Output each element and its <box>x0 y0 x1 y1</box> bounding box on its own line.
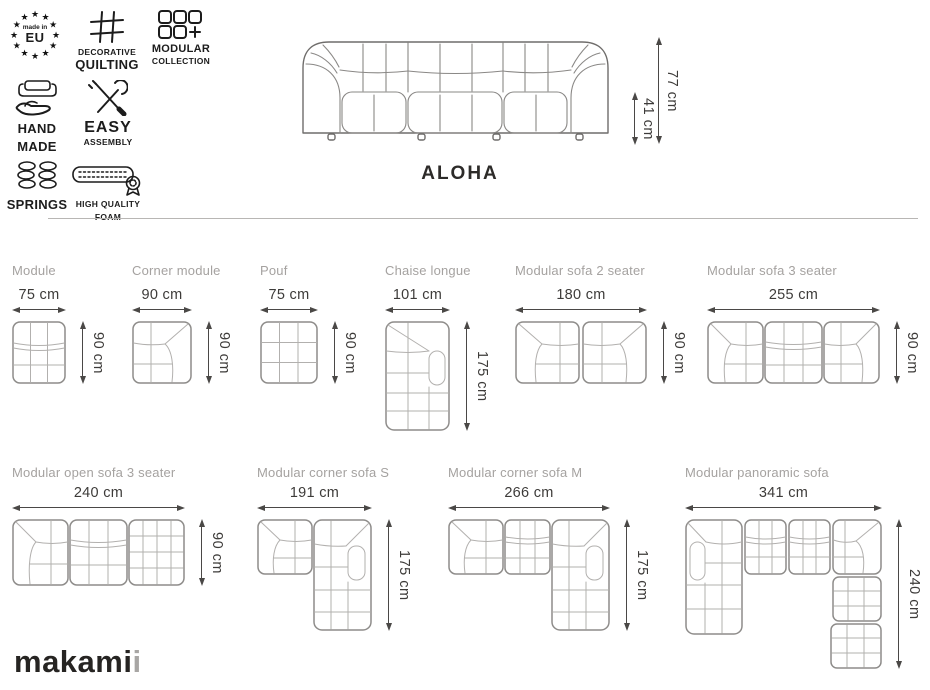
chaise-longue-top-view <box>385 321 450 431</box>
product-card-module: Module 75 cm 90 cm <box>12 263 106 384</box>
product-card-open-sofa-3-seater: Modular open sofa 3 seater 240 cm <box>12 465 225 586</box>
width-arrow <box>448 503 610 512</box>
width-label: 75 cm <box>260 287 318 303</box>
height-dimension: 90 cm <box>78 321 106 384</box>
corner-sofa-m-top-view <box>448 519 610 631</box>
height-label: 90 cm <box>209 519 225 586</box>
badge-label: EASY <box>84 120 132 137</box>
product-title: Corner module <box>132 263 232 279</box>
product-card-sofa-2-seater: Modular sofa 2 seater 180 cm <box>515 263 687 384</box>
high-quality-foam-badge: HIGH QUALITY FOAM <box>68 162 148 222</box>
product-card-corner-sofa-m: Modular corner sofa M 266 cm <box>448 465 650 631</box>
quilting-icon <box>89 10 125 44</box>
height-label: 90 cm <box>216 321 232 384</box>
width-arrow <box>260 305 318 314</box>
height-dimension: 90 cm <box>204 321 232 384</box>
modular-collection-icon <box>157 10 205 40</box>
badge-label: MADE <box>17 140 56 154</box>
hand-made-icon <box>13 80 61 118</box>
product-card-chaise-longue: Chaise longue 101 cm 17 <box>385 263 490 431</box>
product-spec-sheet: ★ ★ ★ ★ ★ ★ ★ ★ ★ ★ ★ ★ made in EU DECOR… <box>0 0 930 690</box>
height-arrow <box>330 321 339 384</box>
height-dimension: 240 cm <box>894 519 922 669</box>
sofa-front-view-drawing <box>298 30 613 145</box>
springs-icon <box>15 160 59 194</box>
brand-logo: makamii <box>14 644 142 680</box>
badge-label: SPRINGS <box>7 198 68 212</box>
width-label: 75 cm <box>12 287 66 303</box>
sofa-3-seater-top-view <box>707 321 880 384</box>
badge-label: DECORATIVE <box>78 48 136 57</box>
product-title: Modular sofa 2 seater <box>515 263 687 279</box>
made-in-eu-badge: ★ ★ ★ ★ ★ ★ ★ ★ ★ ★ ★ ★ made in EU <box>6 6 64 64</box>
width-label: 255 cm <box>707 287 880 303</box>
eu-label: EU <box>25 31 44 45</box>
seat-height-arrow <box>630 92 639 145</box>
width-arrow <box>12 305 66 314</box>
height-label: 90 cm <box>904 321 920 384</box>
springs-badge: SPRINGS <box>6 160 68 212</box>
height-label: 90 cm <box>90 321 106 384</box>
product-title: Modular panoramic sofa <box>685 465 922 481</box>
height-label: 175 cm <box>396 519 412 631</box>
height-dimension: 90 cm <box>659 321 687 384</box>
overall-height-label: 77 cm <box>664 37 680 144</box>
width-arrow <box>12 503 185 512</box>
height-arrow <box>659 321 668 384</box>
width-arrow <box>685 503 882 512</box>
width-label: 240 cm <box>12 485 185 501</box>
sofa-2-seater-top-view <box>515 321 647 384</box>
height-label: 240 cm <box>906 519 922 669</box>
easy-assembly-badge: EASY ASSEMBLY <box>74 80 142 147</box>
module-top-view <box>12 321 66 384</box>
corner-module-top-view <box>132 321 192 384</box>
product-title: Modular corner sofa M <box>448 465 650 481</box>
badge-label: COLLECTION <box>152 57 210 66</box>
width-arrow <box>132 305 192 314</box>
foam-icon <box>71 162 145 196</box>
pouf-top-view <box>260 321 318 384</box>
badge-label: QUILTING <box>75 58 139 72</box>
badge-label: HIGH QUALITY <box>76 200 141 209</box>
height-arrow <box>892 321 901 384</box>
height-label: 175 cm <box>634 519 650 631</box>
product-card-pouf: Pouf 75 cm 90 cm <box>260 263 358 384</box>
product-title: Modular open sofa 3 seater <box>12 465 225 481</box>
product-card-corner-sofa-s: Modular corner sofa S 191 cm <box>257 465 412 631</box>
product-card-panoramic-sofa: Modular panoramic sofa 341 cm <box>685 465 922 669</box>
width-arrow <box>257 503 372 512</box>
height-dimension: 175 cm <box>462 321 490 431</box>
width-label: 341 cm <box>685 485 882 501</box>
height-arrow <box>622 519 631 631</box>
width-arrow <box>515 305 647 314</box>
height-label: 175 cm <box>474 321 490 431</box>
product-card-corner-module: Corner module 90 cm 90 cm <box>132 263 232 384</box>
corner-sofa-s-top-view <box>257 519 372 631</box>
height-label: 90 cm <box>671 321 687 384</box>
width-label: 90 cm <box>132 287 192 303</box>
height-arrow <box>462 321 471 431</box>
badge-label: MODULAR <box>152 44 210 56</box>
product-title: Modular sofa 3 seater <box>707 263 920 279</box>
product-title: Chaise longue <box>385 263 490 279</box>
easy-assembly-icon <box>88 80 128 116</box>
modular-collection-badge: MODULAR COLLECTION <box>148 10 214 65</box>
product-title: Pouf <box>260 263 358 279</box>
height-arrow <box>204 321 213 384</box>
product-title: Module <box>12 263 106 279</box>
width-arrow <box>707 305 880 314</box>
product-title: Modular corner sofa S <box>257 465 412 481</box>
panoramic-sofa-top-view <box>685 519 882 669</box>
collection-title: ALOHA <box>360 163 560 185</box>
decorative-quilting-badge: DECORATIVE QUILTING <box>76 10 138 72</box>
width-label: 180 cm <box>515 287 647 303</box>
width-label: 191 cm <box>257 485 372 501</box>
open-sofa-3-seater-top-view <box>12 519 185 586</box>
hand-made-badge: HAND MADE <box>6 80 68 153</box>
brand-logo-accent: i <box>132 644 141 679</box>
brand-logo-main: makami <box>14 644 132 679</box>
height-dimension: 90 cm <box>330 321 358 384</box>
section-divider <box>48 218 918 219</box>
height-dimension: 90 cm <box>892 321 920 384</box>
height-arrow <box>894 519 903 669</box>
width-label: 266 cm <box>448 485 610 501</box>
badge-label: HAND <box>18 122 57 136</box>
product-card-sofa-3-seater: Modular sofa 3 seater 255 cm <box>707 263 920 384</box>
height-arrow <box>197 519 206 586</box>
width-label: 101 cm <box>385 287 450 303</box>
height-dimension: 175 cm <box>384 519 412 631</box>
height-label: 90 cm <box>342 321 358 384</box>
height-arrow <box>78 321 87 384</box>
overall-height-arrow <box>654 37 663 144</box>
width-arrow <box>385 305 450 314</box>
height-dimension: 90 cm <box>197 519 225 586</box>
height-arrow <box>384 519 393 631</box>
height-dimension: 175 cm <box>622 519 650 631</box>
badge-label: ASSEMBLY <box>84 138 133 147</box>
